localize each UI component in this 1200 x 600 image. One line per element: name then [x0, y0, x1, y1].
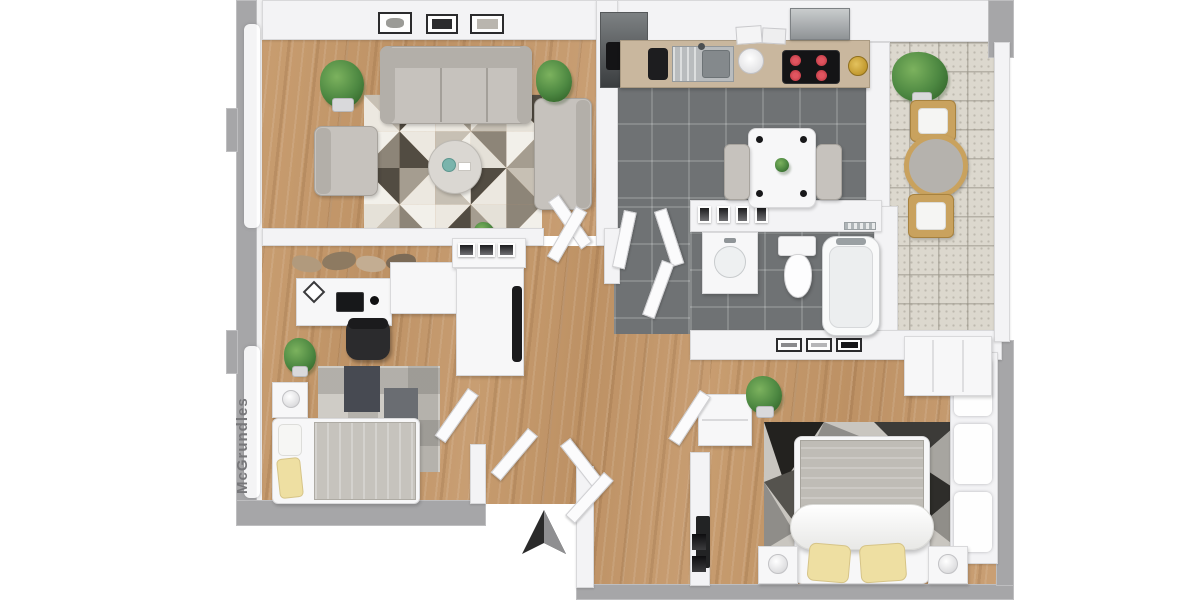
- desk-chair-back: [348, 318, 388, 329]
- bathroom-transom-window: [698, 206, 711, 223]
- cooktop-burner: [790, 70, 801, 81]
- yellow-pillow-left: [806, 542, 851, 584]
- bathtub-faucet: [836, 238, 866, 245]
- bathtub-basin: [829, 246, 873, 328]
- sofa-seam: [486, 68, 488, 122]
- frame-art: [432, 19, 452, 29]
- bed-blanket: [800, 440, 924, 510]
- frame-art: [811, 343, 827, 347]
- armchair-backrest: [316, 128, 331, 194]
- teal-vase: [442, 158, 456, 172]
- living-plant-left-pot: [332, 98, 354, 112]
- cooktop-burner: [790, 55, 801, 66]
- frame-art: [841, 342, 858, 348]
- wardrobe-mirror: [512, 286, 522, 362]
- balcony-chair-top-cushion: [918, 108, 948, 134]
- intercom-panel: [692, 556, 706, 572]
- corner-desk-right: [390, 262, 464, 314]
- desk-mouse: [370, 296, 379, 305]
- white-bowl: [738, 48, 764, 74]
- chaise-backrest: [576, 100, 590, 208]
- frame-art: [477, 19, 498, 29]
- placemat: [756, 136, 763, 143]
- cutting-board: [762, 27, 787, 44]
- vanity-basin: [714, 246, 746, 278]
- watermark-text: McGrundles: [234, 376, 262, 516]
- hall-small-frame-3: [836, 338, 862, 352]
- balcony-table: [904, 134, 968, 198]
- bathroom-transom-window: [755, 206, 768, 223]
- sofa-seam: [440, 68, 442, 122]
- yellow-pillow-single: [276, 457, 304, 499]
- master-curtain: [954, 424, 992, 484]
- small-nightstand-lamp: [282, 390, 300, 408]
- wall-study-low: [470, 444, 486, 504]
- window-sill-left-1: [226, 108, 238, 152]
- hall-small-frame-2: [806, 338, 832, 352]
- bathroom-transom-window: [717, 206, 730, 223]
- outer-wall-right: [996, 340, 1014, 586]
- living-plant-right: [536, 60, 572, 102]
- balcony-chair-bottom-cushion: [916, 202, 946, 230]
- cooktop-burner: [816, 55, 827, 66]
- placemat: [800, 190, 807, 197]
- dining-chair-left: [724, 144, 750, 200]
- dining-chair-right: [816, 144, 842, 200]
- toilet-tank: [778, 236, 816, 256]
- living-wall-frame-1: [378, 12, 412, 34]
- study-plant-pot: [292, 366, 308, 377]
- gold-fruit-bowl: [848, 56, 868, 76]
- sideboard-frame: [498, 243, 515, 257]
- sofa-armrest-right: [517, 46, 532, 124]
- white-pillow: [278, 424, 302, 456]
- placemat: [800, 136, 807, 143]
- toilet-bowl: [784, 254, 812, 298]
- rug-patch: [344, 366, 380, 412]
- frame-art: [781, 343, 797, 347]
- balcony-railing: [994, 42, 1010, 342]
- laptop: [336, 292, 364, 312]
- yellow-pillow-right: [859, 542, 908, 583]
- living-wall-frame-3: [470, 14, 504, 34]
- cooktop-burner: [816, 70, 827, 81]
- coffee-machine: [648, 48, 668, 80]
- living-wall-frame-2: [426, 14, 458, 34]
- table-book: [458, 162, 471, 171]
- sofa-armrest-left: [380, 46, 395, 124]
- vanity-faucet: [724, 238, 736, 243]
- range-hood: [790, 8, 850, 40]
- sideboard-frame: [478, 243, 495, 257]
- hall-small-frame-1: [776, 338, 802, 352]
- living-window-curtain: [244, 24, 260, 228]
- master-lamp-left: [768, 554, 788, 574]
- master-wardrobe-line: [932, 340, 934, 392]
- master-curtain: [954, 492, 992, 552]
- floor-plan-canvas: McGrundles: [0, 0, 1200, 600]
- sink-faucet: [698, 43, 705, 50]
- window-sill-left-2: [226, 330, 238, 374]
- placemat: [756, 190, 763, 197]
- hallway-plant-pot: [756, 406, 774, 418]
- master-wardrobe-line: [962, 340, 964, 392]
- outer-wall-bottom: [576, 584, 1014, 600]
- master-dresser-line: [702, 419, 748, 421]
- master-lamp-right: [938, 554, 958, 574]
- sofa-backrest: [382, 48, 530, 68]
- cutting-board: [735, 25, 762, 45]
- sideboard-frame: [458, 243, 475, 257]
- master-wardrobe: [904, 336, 992, 396]
- frame-art: [386, 18, 404, 28]
- single-bed-blanket: [314, 422, 416, 500]
- chrome-shelf: [844, 222, 876, 230]
- dining-table-plant: [775, 158, 789, 172]
- intercom-panel: [692, 534, 706, 550]
- north-arrow-icon: [516, 508, 572, 560]
- bathroom-transom-window: [736, 206, 749, 223]
- sink-basin: [702, 50, 730, 78]
